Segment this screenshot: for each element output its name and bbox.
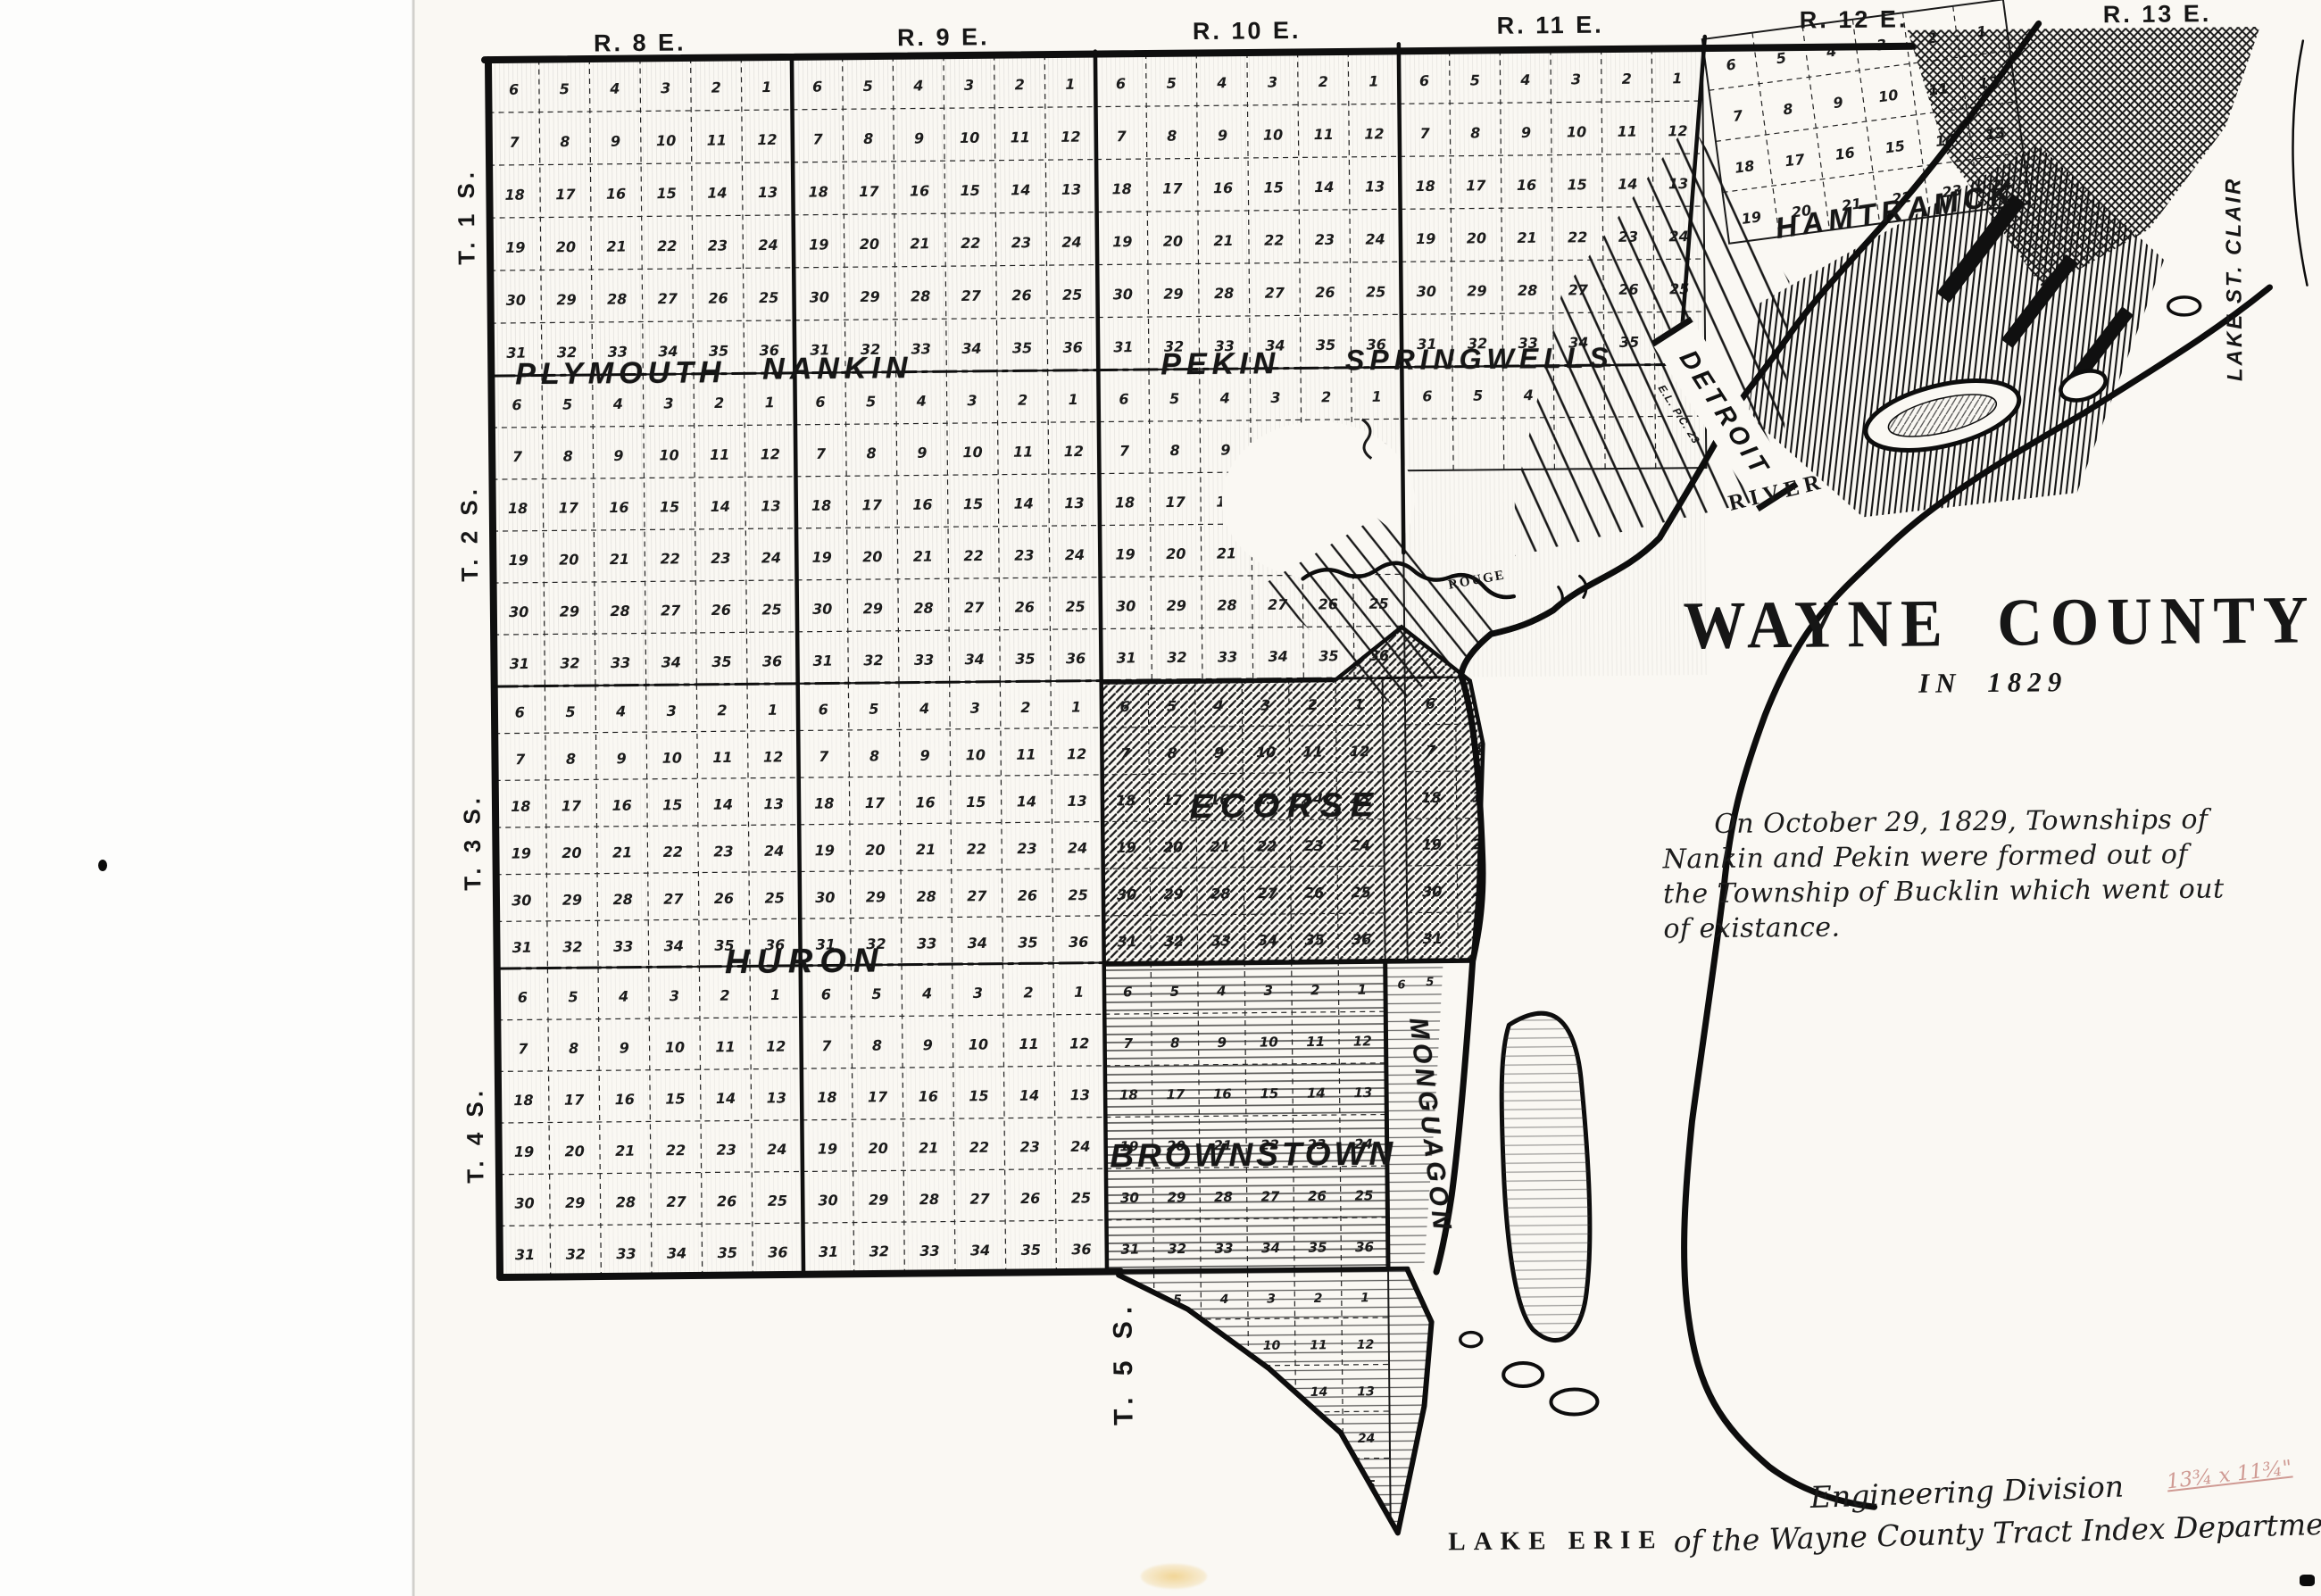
section-number: 9 (1218, 1035, 1227, 1051)
section-number: 18 (811, 497, 831, 514)
section-number: 1 (1357, 982, 1367, 998)
section-number: 28 (916, 888, 936, 905)
section-number: 7 (819, 748, 829, 765)
section-number: 5 (1167, 75, 1177, 92)
section-number: 29 (860, 288, 879, 305)
section-number: 31 (1423, 930, 1443, 947)
section-number: 25 (1351, 884, 1370, 901)
section-number: 21 (606, 238, 626, 255)
section-number: 26 (1304, 885, 1324, 902)
range-header: R. 13 E. (2103, 0, 2212, 29)
section-number: 18 (1421, 789, 1441, 806)
section-number: 14 (1017, 793, 1036, 810)
section-number: 34 (1261, 1240, 1280, 1256)
section-number: 25 (761, 601, 781, 618)
section-number: 12 (761, 445, 780, 462)
section-number: 19 (1123, 1434, 1141, 1448)
svg-text:6: 6 (1397, 978, 1405, 992)
section-number: 35 (1021, 1242, 1041, 1259)
township-row-label: T. 2 S. (455, 485, 484, 582)
section-number: 8 (872, 1037, 882, 1054)
section-number: 8 (1170, 1035, 1180, 1051)
section-number: 31 (819, 1243, 838, 1260)
section-number: 19 (512, 844, 531, 861)
section-number: 26 (711, 602, 731, 619)
section-number: 20 (1170, 1434, 1188, 1448)
section-number: 8 (566, 751, 576, 768)
section-number: 22 (660, 550, 679, 567)
section-number: 34 (1269, 648, 1288, 665)
section-number: 30 (1116, 597, 1136, 614)
range-header: R. 8 E. (594, 29, 686, 57)
section-number: 33 (616, 1245, 636, 1262)
lake-st-clair-far-shore (2292, 41, 2307, 286)
section-number: 4 (1523, 387, 1534, 403)
section-number: 16 (912, 496, 932, 513)
section-number: 21 (612, 844, 632, 860)
section-number: 21 (1213, 232, 1233, 249)
section-number: 15 (1573, 787, 1593, 804)
section-number: 17 (862, 496, 883, 513)
section-number: 12 (1674, 740, 1693, 757)
island (1503, 1363, 1543, 1386)
section-number: 24 (761, 549, 781, 566)
section-number: 15 (1263, 1385, 1281, 1400)
section-number: 2 (1310, 982, 1320, 998)
section-number: 29 (562, 892, 582, 909)
section-number: 19 (815, 842, 835, 859)
section-number: 10 (662, 749, 682, 766)
section-number: 3 (1267, 1292, 1276, 1306)
section-number: 27 (666, 1193, 686, 1210)
section-number: 11 (1310, 1338, 1327, 1352)
section-number: 7 (813, 130, 824, 147)
section-number: 8 (1174, 1340, 1183, 1354)
scanned-map-page: 6543217891011121817161514131920212223243… (0, 0, 2321, 1596)
section-number: 24 (1351, 836, 1370, 853)
section-number: 2 (717, 702, 727, 719)
section-number: 11 (1314, 126, 1334, 143)
historical-note: On October 29, 1829, Townships of Nankin… (1662, 802, 2288, 947)
section-number: 11 (1013, 444, 1033, 461)
section-number: 35 (1625, 928, 1644, 945)
section-number: 29 (1167, 1189, 1185, 1205)
section-number: 1 (1354, 695, 1364, 712)
section-number: 5 (871, 985, 881, 1002)
section-number: 5 (1169, 390, 1179, 407)
section-number: 11 (715, 1038, 735, 1055)
section-number: 20 (865, 842, 885, 859)
section-number: 22 (663, 844, 683, 860)
section-number: 1 (1368, 72, 1378, 89)
section-number: 14 (1011, 181, 1030, 198)
section-number: 28 (610, 603, 629, 619)
section-number: 19 (1416, 230, 1435, 247)
section-number: 36 (1359, 1525, 1377, 1540)
section-number: 19 (508, 552, 528, 569)
section-number: 35 (1304, 931, 1324, 948)
section-number: 4 (1219, 1293, 1229, 1307)
section-number: 15 (665, 1090, 685, 1107)
section-number: 17 (564, 1092, 585, 1109)
section-number: 10 (969, 1036, 988, 1053)
note-line: On October 29, 1829, Townships of (1662, 802, 2287, 843)
section-number: 28 (913, 600, 933, 617)
section-number: 33 (613, 938, 633, 955)
section-number: 16 (1213, 179, 1233, 196)
section-number: 30 (1120, 1190, 1139, 1206)
section-number: 10 (1263, 1339, 1281, 1353)
section-number: 7 (1119, 443, 1130, 460)
section-number: 33 (917, 935, 936, 952)
section-number: 24 (1068, 839, 1087, 856)
section-number: 36 (762, 653, 782, 669)
township-name-pekin: PEKIN (1160, 346, 1280, 382)
section-number: 22 (1264, 232, 1284, 249)
section-number: 1 (1069, 391, 1078, 408)
section-number: 16 (615, 1091, 635, 1108)
section-number: 26 (1018, 887, 1037, 904)
section-number: 11 (712, 749, 732, 766)
section-number: 13 (758, 184, 778, 201)
section-number: 21 (1217, 1433, 1235, 1447)
section-number: 14 (1014, 495, 1034, 512)
section-number: 27 (1260, 1188, 1280, 1204)
section-number: 8 (569, 1040, 578, 1057)
section-number: 9 (1527, 741, 1536, 758)
section-number: 8 (1167, 128, 1177, 145)
section-number: 6 (819, 701, 828, 718)
section-number: 15 (662, 796, 682, 813)
section-number: 7 (510, 134, 520, 151)
section-number: 7 (821, 1037, 832, 1054)
section-number: 25 (764, 889, 784, 906)
section-number: 10 (1567, 123, 1586, 140)
section-number: 10 (1877, 87, 1900, 106)
section-number: 13 (1357, 1384, 1375, 1399)
section-number: 29 (1163, 885, 1183, 902)
section-number: 21 (610, 551, 629, 568)
section-number: 5 (869, 701, 878, 718)
section-number: 18 (814, 795, 834, 812)
section-number: 17 (859, 183, 879, 200)
section-number: 10 (962, 444, 982, 461)
section-number: 21 (1217, 544, 1236, 561)
section-number: 29 (560, 603, 579, 619)
section-number: 20 (559, 551, 578, 568)
section-number: 7 (1419, 125, 1430, 142)
section-number: 30 (512, 892, 531, 909)
section-number: 1 (1074, 984, 1084, 1001)
section-number: 27 (1264, 1479, 1282, 1493)
section-number: 3 (667, 702, 677, 719)
section-number: 32 (1171, 1527, 1189, 1542)
section-number: 30 (509, 603, 528, 620)
section-number: 16 (919, 1088, 938, 1105)
section-number: 10 (665, 1039, 685, 1056)
map-title: WAYNE COUNTY (1683, 582, 2317, 665)
section-number: 12 (1061, 129, 1080, 145)
island (1460, 1332, 1482, 1346)
section-number: 10 (1256, 744, 1276, 761)
section-number: 3 (970, 700, 980, 717)
section-number: 9 (917, 445, 927, 461)
section-number: 9 (923, 1036, 933, 1053)
section-number: 9 (1832, 94, 1844, 112)
section-number: 29 (556, 291, 576, 308)
section-number: 21 (916, 841, 936, 858)
section-number: 22 (657, 237, 677, 254)
section-number: 25 (1354, 1187, 1373, 1203)
section-number: 33 (1210, 932, 1230, 949)
section-number: 4 (612, 395, 623, 412)
section-number: 6 (509, 81, 519, 98)
section-number: 7 (515, 751, 526, 768)
section-number: 18 (508, 500, 528, 517)
section-number: 18 (511, 798, 530, 815)
section-number: 35 (1012, 339, 1032, 356)
section-number: 1 (761, 79, 771, 96)
section-number: 11 (1016, 746, 1036, 763)
section-number: 35 (718, 1244, 737, 1261)
section-number: 6 (815, 394, 825, 411)
section-number: 27 (964, 599, 985, 616)
township-row-label: T. 5 S. (1108, 1300, 1139, 1426)
section-number: 4 (1526, 694, 1536, 711)
section-number: 1 (1372, 388, 1382, 405)
section-number: 35 (1309, 1240, 1327, 1256)
section-number: 29 (1170, 1480, 1188, 1494)
section-number: 11 (1019, 1035, 1038, 1052)
section-number: 28 (1214, 285, 1234, 302)
yellow-smudge (1141, 1564, 1207, 1589)
section-number: 2 (711, 79, 721, 96)
section-number: 28 (919, 1191, 939, 1208)
section-number: 25 (1065, 598, 1085, 615)
section-number: 15 (1884, 137, 1907, 157)
section-number: 1 (1065, 76, 1075, 93)
section-number: 22 (961, 235, 980, 252)
section-number: 35 (1018, 934, 1037, 951)
section-number: 15 (1567, 176, 1586, 193)
section-number: 33 (1524, 929, 1543, 946)
section-number: 27 (967, 887, 987, 904)
section-number: 35 (1311, 1525, 1329, 1540)
township-row-label: T. 3 S. (458, 794, 487, 891)
section-number: 16 (606, 186, 626, 203)
section-number: 5 (1776, 49, 1788, 67)
section-number: 23 (708, 237, 728, 254)
section-number: 35 (711, 653, 731, 670)
section-number: 12 (757, 131, 777, 148)
section-number: 19 (811, 549, 831, 566)
section-number: 18 (1116, 792, 1136, 809)
section-number: 14 (1314, 179, 1334, 195)
section-number: 16 (1213, 1086, 1232, 1102)
section-number: 23 (1624, 834, 1643, 851)
range-header: R. 9 E. (897, 23, 990, 52)
section-number: 15 (966, 794, 986, 810)
section-number: 14 (713, 796, 733, 813)
section-number: 5 (565, 703, 575, 720)
section-number: 4 (609, 80, 620, 97)
section-number: 36 (1066, 650, 1086, 667)
section-number: 35 (1015, 651, 1035, 668)
section-number: 32 (869, 1243, 889, 1259)
section-number: 27 (663, 890, 684, 907)
section-number: 6 (1119, 391, 1128, 408)
section-number: 24 (764, 843, 784, 860)
section-number: 25 (1071, 1189, 1091, 1206)
section-number: 18 (513, 1092, 533, 1109)
svg-text:5: 5 (1426, 976, 1434, 989)
section-number: 20 (562, 844, 581, 861)
section-number: 11 (710, 446, 729, 463)
section-number: 26 (1015, 599, 1035, 616)
section-number: 17 (1169, 1386, 1187, 1401)
section-number: 16 (609, 499, 628, 516)
section-number: 15 (960, 182, 979, 199)
section-number: 28 (1214, 1189, 1233, 1205)
section-number: 18 (1415, 178, 1435, 195)
section-number: 17 (559, 499, 579, 516)
section-number: 20 (564, 1143, 584, 1160)
section-number: 18 (1119, 1087, 1138, 1103)
section-number: 8 (867, 445, 877, 461)
section-number: 32 (863, 652, 883, 669)
section-number: 10 (1260, 1034, 1278, 1050)
section-number: 7 (518, 1040, 528, 1057)
note-line: Nankin and Pekin were formed out of (1662, 836, 2287, 877)
township-name-springwells: SPRINGWELLS (1345, 342, 1614, 378)
section-number: 14 (1618, 176, 1637, 193)
section-number: 32 (1168, 1241, 1186, 1257)
map-subtitle: IN 1829 (1918, 666, 2068, 700)
section-number: 8 (560, 133, 570, 150)
section-number: 36 (1063, 339, 1083, 356)
section-number: 26 (714, 890, 734, 907)
section-number: 21 (615, 1143, 635, 1160)
township-row-label: T. 1 S. (453, 168, 481, 265)
section-number: 28 (1523, 882, 1543, 899)
section-number: 22 (1568, 229, 1587, 245)
section-number: 30 (810, 288, 829, 305)
section-number: 26 (1020, 1190, 1040, 1207)
section-number: 3 (670, 987, 679, 1004)
section-number: 14 (1019, 1087, 1039, 1104)
section-number: 34 (667, 1244, 686, 1261)
section-number: 18 (1734, 157, 1756, 177)
section-number: 32 (1167, 649, 1186, 666)
section-number: 9 (1521, 124, 1531, 141)
section-number: 22 (1264, 1433, 1282, 1447)
section-number: 28 (1217, 596, 1236, 613)
section-number: 29 (863, 600, 883, 617)
section-number: 29 (869, 1192, 888, 1209)
section-number: 31 (1124, 1527, 1142, 1542)
section-number: 12 (766, 1038, 786, 1055)
island (1551, 1389, 1597, 1414)
section-number: 3 (1577, 694, 1587, 711)
section-number: 16 (1522, 788, 1542, 805)
section-number: 30 (815, 889, 835, 906)
section-number: 10 (1263, 127, 1283, 144)
section-number: 32 (560, 654, 579, 671)
section-number: 30 (812, 601, 832, 618)
section-number: 17 (868, 1088, 888, 1105)
section-number: 9 (611, 133, 620, 150)
section-number: 17 (865, 794, 886, 811)
section-number: 7 (816, 445, 827, 462)
section-number: 34 (1258, 932, 1277, 949)
section-number: 8 (1782, 100, 1794, 118)
section-number: 26 (1311, 1479, 1329, 1493)
section-number: 10 (659, 446, 678, 463)
section-number: 14 (716, 1090, 736, 1107)
section-number: 33 (1218, 1526, 1235, 1541)
section-number: 15 (657, 185, 677, 202)
section-number: 31 (1121, 1242, 1140, 1258)
section-number: 34 (965, 651, 985, 668)
section-number: 13 (1064, 495, 1084, 511)
section-number: 3 (1268, 74, 1277, 91)
section-number: 29 (1163, 286, 1183, 303)
section-number: 26 (1625, 881, 1644, 898)
section-number: 32 (1164, 933, 1184, 950)
section-number: 34 (961, 340, 981, 357)
section-number: 2 (1622, 71, 1632, 87)
section-number: 23 (713, 843, 733, 860)
section-number: 2 (1321, 388, 1331, 405)
section-number: 5 (866, 393, 876, 410)
section-number: 8 (869, 747, 879, 764)
section-number: 24 (1070, 1138, 1090, 1155)
section-number: 14 (1307, 1085, 1326, 1101)
section-number: 18 (505, 187, 525, 204)
section-number: 10 (656, 132, 676, 149)
section-number: 8 (563, 448, 573, 465)
section-number: 17 (1166, 1086, 1185, 1102)
section-number: 2 (1308, 696, 1318, 713)
map-graphic: 6543217891011121817161514131920212223243… (0, 0, 2321, 1596)
section-number: 26 (717, 1193, 736, 1209)
section-number: 17 (1466, 177, 1486, 194)
section-number: 33 (1215, 1241, 1234, 1257)
section-number: 3 (661, 79, 670, 96)
section-number: 6 (1422, 387, 1432, 404)
section-number: 30 (1117, 886, 1136, 903)
section-number: 6 (1116, 75, 1126, 92)
section-number: 16 (915, 794, 935, 810)
section-number: 7 (1732, 107, 1744, 125)
section-number: 23 (1315, 231, 1335, 248)
section-number: 27 (1257, 885, 1277, 902)
section-number: 16 (1834, 144, 1856, 163)
section-number: 30 (1124, 1481, 1142, 1495)
section-number: 18 (817, 1089, 836, 1106)
section-number: 4 (916, 393, 927, 410)
lake-st-clair-label: LAKE ST. CLAIR (2221, 176, 2248, 381)
section-number: 22 (963, 547, 983, 564)
section-number: 36 (1355, 1239, 1374, 1255)
section-number: 20 (1163, 838, 1183, 855)
section-number: 11 (1306, 1034, 1325, 1050)
section-number: 13 (1674, 786, 1693, 803)
section-number: 12 (1353, 1033, 1372, 1049)
section-number: 29 (866, 888, 886, 905)
section-number: 31 (1117, 649, 1136, 666)
section-number: 28 (1210, 885, 1230, 902)
